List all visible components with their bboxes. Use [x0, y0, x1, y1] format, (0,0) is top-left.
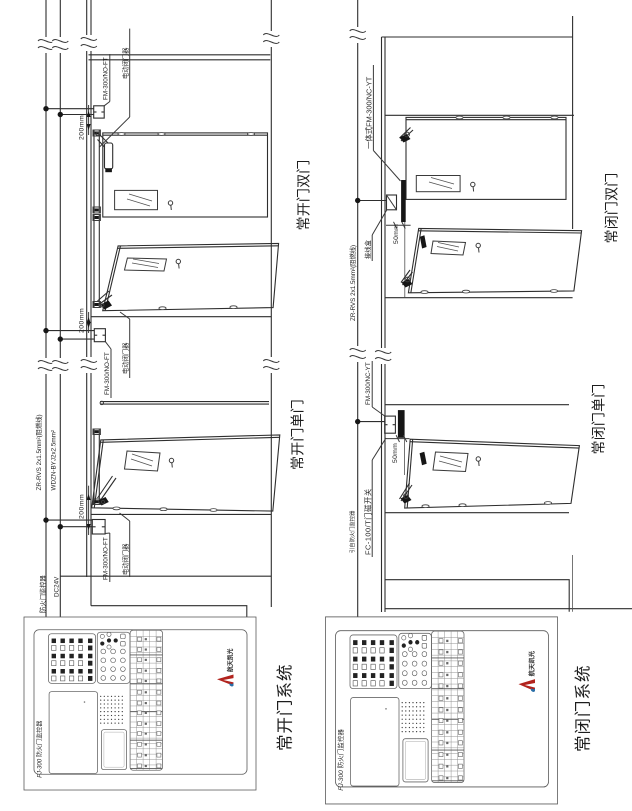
svg-text:ZR-RVS 2x1.5mm²(阻燃线): ZR-RVS 2x1.5mm²(阻燃线) — [348, 245, 357, 321]
svg-text:电动闭门器: 电动闭门器 — [121, 47, 130, 79]
svg-text:常开门单门: 常开门单门 — [290, 399, 306, 470]
svg-text:50mm: 50mm — [393, 224, 400, 244]
svg-text:WDZN-BYJ2x2.5mm²: WDZN-BYJ2x2.5mm² — [51, 430, 58, 491]
svg-text:ZR-RVS 2x1.5mm²(阻燃线): ZR-RVS 2x1.5mm²(阻燃线) — [34, 414, 43, 490]
svg-text:200mm: 200mm — [79, 494, 86, 519]
svg-text:常闭门单门: 常闭门单门 — [591, 384, 607, 455]
svg-text:50mm: 50mm — [392, 443, 399, 463]
svg-text:常闭门双门: 常闭门双门 — [604, 173, 620, 244]
svg-text:引自防火门监控器: 引自防火门监控器 — [348, 510, 356, 553]
svg-text:FM-300/NC-YT: FM-300/NC-YT — [365, 362, 372, 405]
svg-text:一体式FM-300/NC-YT: 一体式FM-300/NC-YT — [365, 76, 374, 149]
svg-text:常闭门系统: 常闭门系统 — [574, 665, 593, 753]
svg-text:FM-300/NO-FT: FM-300/NO-FT — [103, 537, 110, 580]
svg-text:200mm: 200mm — [79, 115, 86, 140]
svg-text:200mm: 200mm — [79, 308, 86, 333]
svg-text:FM-300/NO-FT: FM-300/NO-FT — [104, 352, 111, 395]
svg-text:FM-300/NO-FT: FM-300/NO-FT — [103, 57, 110, 100]
svg-text:常开门双门: 常开门双门 — [296, 160, 312, 231]
svg-text:FC-100/T门磁开关: FC-100/T门磁开关 — [364, 488, 373, 555]
svg-text:DC24V: DC24V — [54, 576, 61, 597]
svg-text:接线盒: 接线盒 — [363, 239, 372, 259]
svg-text:防火门监控器: 防火门监控器 — [38, 575, 47, 613]
svg-text:电动闭门器: 电动闭门器 — [121, 543, 130, 575]
svg-text:电动闭门器: 电动闭门器 — [121, 342, 130, 374]
svg-text:常开门系统: 常开门系统 — [276, 664, 295, 752]
